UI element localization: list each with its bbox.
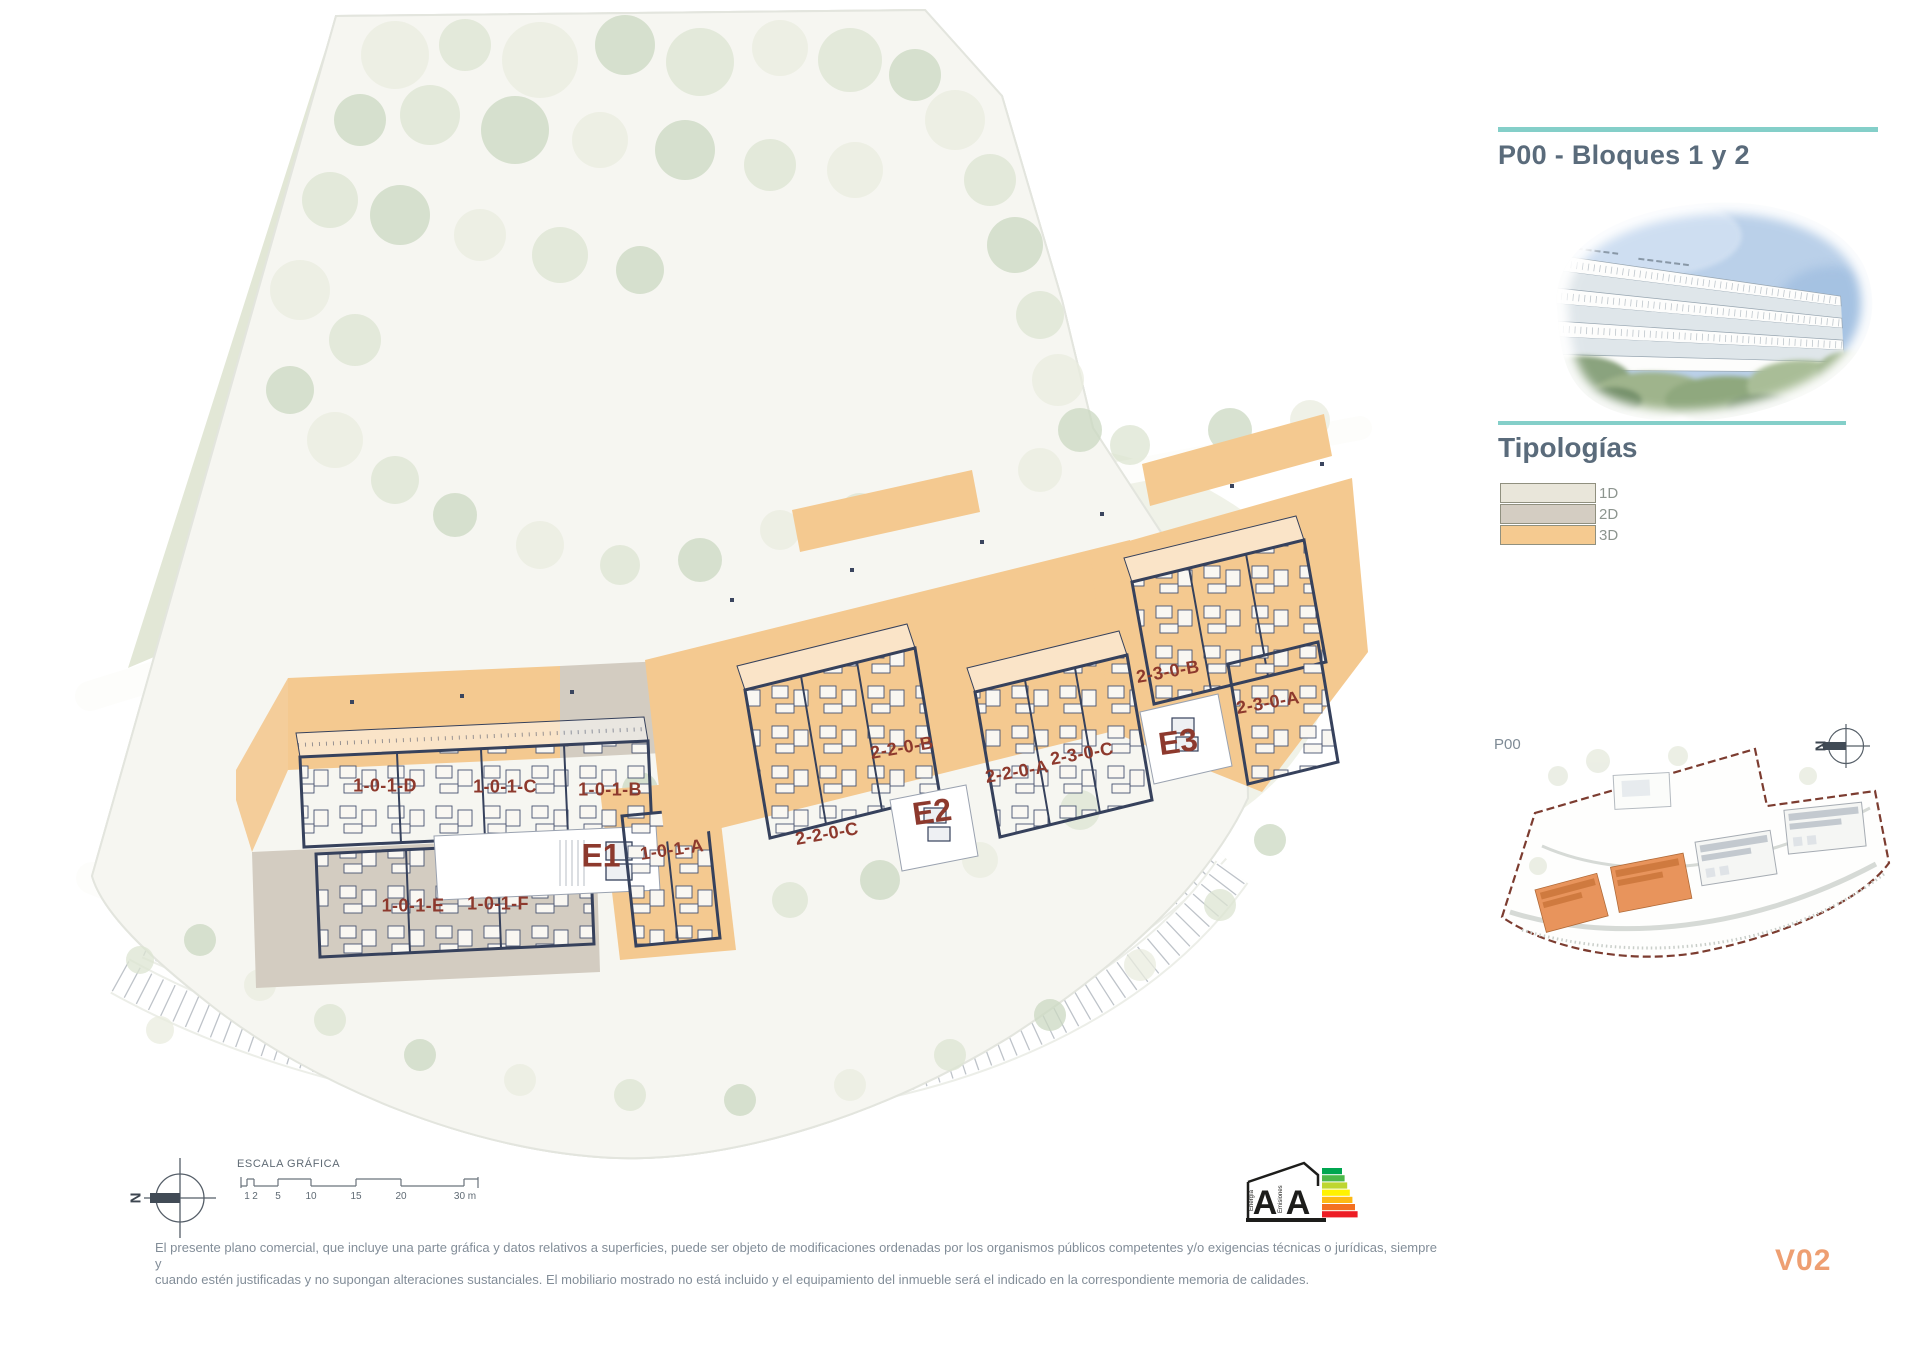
emissions-letter: A	[1286, 1184, 1311, 1222]
scale-tick-label: 2	[252, 1191, 258, 1202]
tipologias-rule	[1498, 421, 1846, 425]
energy-rating-icon: A A Energía Emisiones	[1238, 1156, 1398, 1236]
scale-tick-label: 10	[305, 1191, 316, 1202]
page-title: P00 - Bloques 1 y 2	[1498, 140, 1750, 171]
legend-swatch-3d	[1500, 525, 1596, 545]
scale-tick-label: 1	[244, 1191, 250, 1202]
disclaimer-line: El presente plano comercial, que incluye…	[155, 1240, 1447, 1272]
scale-end-label: 30 m	[454, 1191, 476, 1202]
entrance-label: E1	[581, 838, 620, 875]
legend-row: 2D	[1500, 504, 1618, 525]
legend-label: 2D	[1599, 506, 1618, 523]
version-label: V02	[1775, 1244, 1831, 1278]
scale-tick-label: 20	[395, 1191, 406, 1202]
scale-tick-label: 15	[350, 1191, 361, 1202]
energy-axis-label: Energía	[1249, 1189, 1255, 1211]
entrance-label: E2	[910, 791, 954, 833]
scale-title: ESCALA GRÁFICA	[237, 1158, 340, 1170]
unit-label: 1-0-1-B	[578, 780, 642, 801]
legend-swatch-1d	[1500, 483, 1596, 503]
unit-label: 1-0-1-D	[353, 776, 417, 797]
tipologias-heading: Tipologías	[1498, 432, 1638, 464]
keyplan-pool	[1613, 773, 1671, 810]
disclaimer-line: cuando estén justificadas y no supongan …	[155, 1272, 1447, 1288]
energy-scale-bars	[1322, 1168, 1358, 1217]
legend-swatch-2d	[1500, 504, 1596, 524]
building-rendering	[1512, 186, 1892, 434]
keyplan-north-letter: N	[1813, 741, 1830, 752]
scale-tick-label: 5	[275, 1191, 281, 1202]
north-letter: N	[128, 1193, 145, 1204]
unit-label: 1-0-1-F	[467, 894, 529, 915]
title-rule	[1498, 127, 1878, 132]
energy-letter: A	[1253, 1184, 1278, 1222]
legend-row: 3D	[1500, 525, 1618, 546]
legend-row: 1D	[1500, 483, 1618, 504]
unit-label: 1-0-1-E	[382, 896, 445, 917]
unit-label: 1-0-1-C	[473, 777, 537, 798]
typology-legend: 1D 2D 3D	[1500, 483, 1618, 546]
keyplan-canvas	[1478, 716, 1920, 982]
disclaimer: El presente plano comercial, que incluye…	[155, 1240, 1447, 1288]
emissions-axis-label: Emisiones	[1278, 1185, 1284, 1213]
entrance-label: E3	[1156, 721, 1200, 763]
legend-label: 3D	[1599, 527, 1618, 544]
keyplan-block4	[1784, 802, 1866, 854]
legend-label: 1D	[1599, 485, 1618, 502]
